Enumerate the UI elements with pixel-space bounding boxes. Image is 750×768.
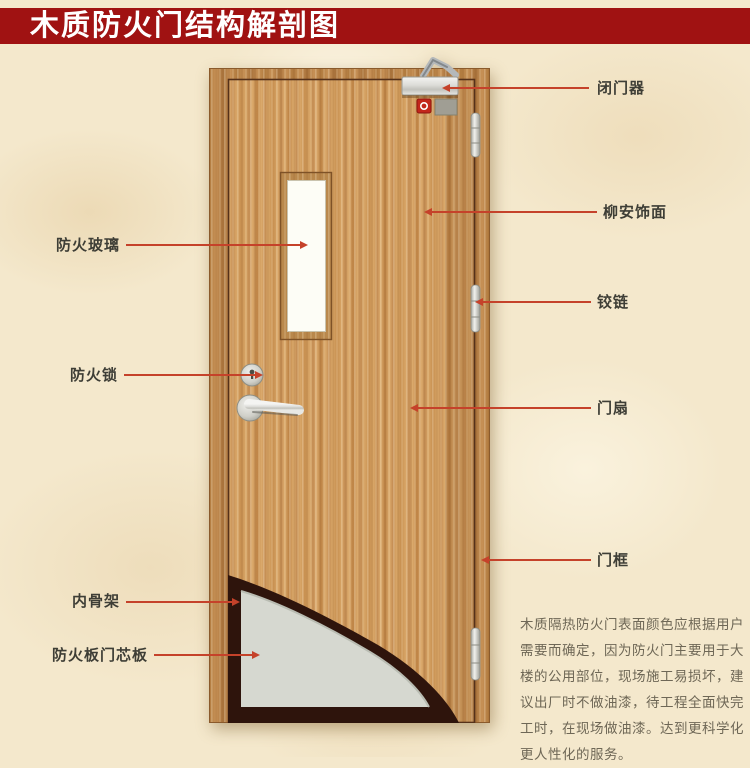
leader-hinge <box>481 301 591 303</box>
callout-label-inner-skeleton: 内骨架 <box>20 593 120 610</box>
title-banner: 木质防火门结构解剖图 <box>0 8 750 44</box>
callout-label-hinge: 铰链 <box>597 294 629 311</box>
closer-red-badge <box>417 99 431 113</box>
callout-label-door-closer: 闭门器 <box>597 80 645 97</box>
note-line: 工时，在现场做油漆。达到更科学化 <box>520 716 730 742</box>
hinge-middle <box>471 285 480 332</box>
note-line: 更人性化的服务。 <box>520 742 730 768</box>
hinge-top <box>471 113 480 157</box>
callout-label-fire-glass: 防火玻璃 <box>20 237 120 254</box>
callout-label-lauan-veneer: 柳安饰面 <box>603 204 667 221</box>
arrow-right-icon <box>300 241 308 249</box>
callout-label-fire-lock: 防火锁 <box>20 367 118 384</box>
description-note: 木质隔热防火门表面颜色应根据用户 需要而确定，因为防火门主要用于大 楼的公用部位… <box>520 612 730 768</box>
leader-door-leaf <box>416 407 591 409</box>
arrow-left-icon <box>424 208 432 216</box>
arrow-left-icon <box>442 84 450 92</box>
fire-door-diagram <box>209 55 490 723</box>
leader-lauan-veneer <box>430 211 597 213</box>
door-illustration <box>209 55 490 723</box>
leader-door-closer <box>448 87 589 89</box>
note-line: 需要而确定，因为防火门主要用于大 <box>520 638 730 664</box>
leader-fire-lock <box>124 374 257 376</box>
arrow-left-icon <box>481 556 489 564</box>
arrow-right-icon <box>232 598 240 606</box>
hinge-bottom <box>471 628 480 680</box>
fire-glass-window <box>280 172 332 340</box>
note-line: 议出厂时不做油漆，待工程全面快完 <box>520 690 730 716</box>
leader-fire-glass <box>126 244 302 246</box>
note-line: 楼的公用部位，现场施工易损坏，建 <box>520 664 730 690</box>
closer-gray-plate <box>435 99 457 115</box>
arrow-right-icon <box>255 371 263 379</box>
leader-fire-board-core <box>154 654 254 656</box>
arrow-left-icon <box>475 298 483 306</box>
door-handle <box>249 404 299 410</box>
note-line: 木质隔热防火门表面颜色应根据用户 <box>520 612 730 638</box>
leader-inner-skeleton <box>126 601 234 603</box>
callout-label-fire-board-core: 防火板门芯板 <box>20 647 148 664</box>
page-title: 木质防火门结构解剖图 <box>30 8 340 44</box>
arrow-right-icon <box>252 651 260 659</box>
door-closer-shadow <box>402 95 458 98</box>
callout-label-door-leaf: 门扇 <box>597 400 629 417</box>
callout-label-door-frame: 门框 <box>597 552 629 569</box>
leader-door-frame <box>487 559 591 561</box>
page-background: 木质防火门结构解剖图 <box>0 0 750 757</box>
arrow-left-icon <box>410 404 418 412</box>
